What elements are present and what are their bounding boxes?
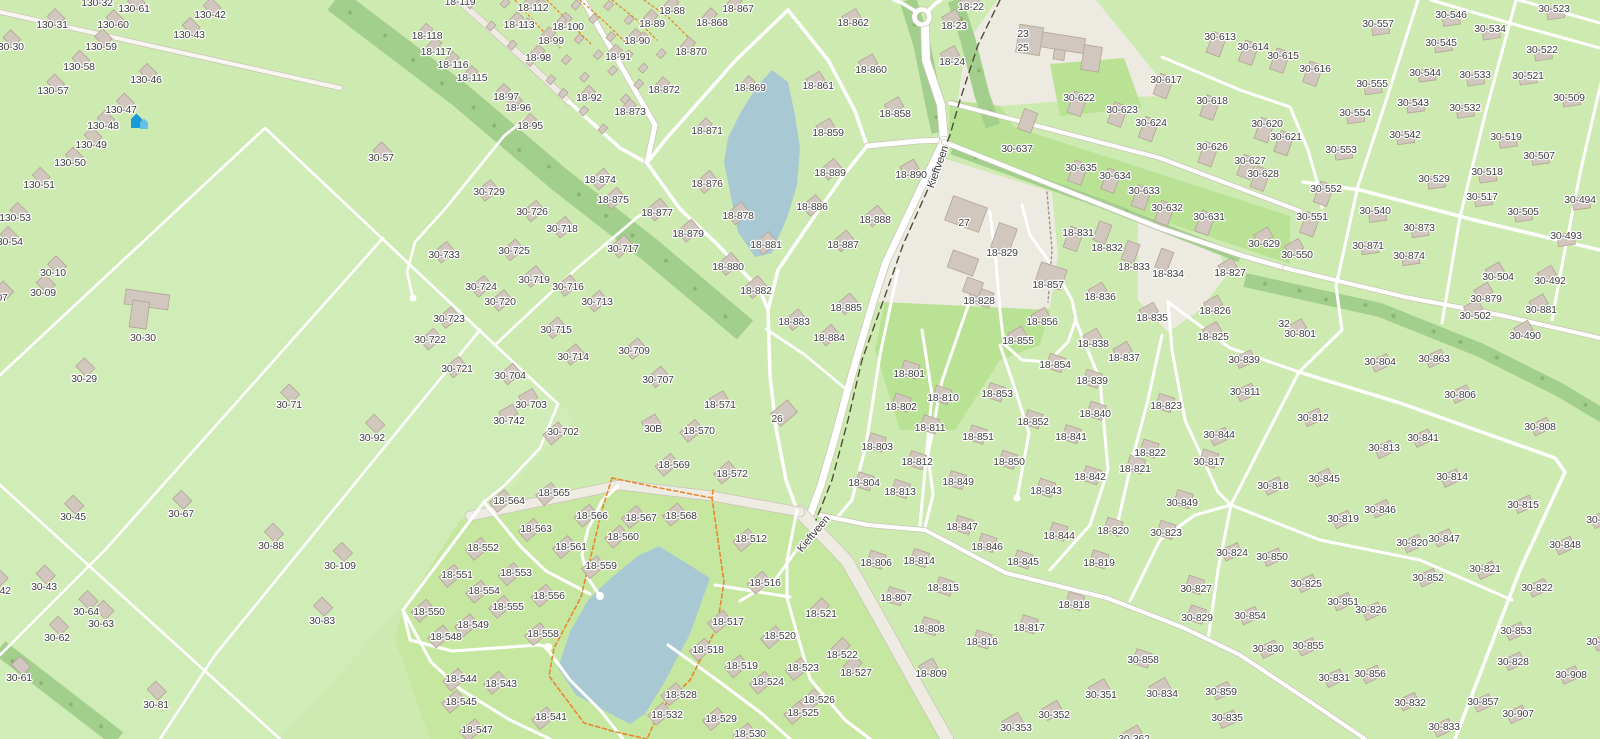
svg-text:30-81: 30-81 (143, 699, 169, 711)
svg-text:23: 23 (1017, 28, 1029, 40)
svg-text:18-812: 18-812 (901, 456, 933, 468)
svg-text:18-813: 18-813 (884, 486, 916, 498)
svg-text:18-836: 18-836 (1084, 291, 1116, 303)
svg-text:30-550: 30-550 (1281, 249, 1313, 261)
svg-text:30-819: 30-819 (1327, 513, 1359, 525)
svg-text:18-840: 18-840 (1079, 408, 1111, 420)
svg-text:30-829: 30-829 (1181, 612, 1213, 624)
svg-text:18-570: 18-570 (683, 425, 715, 437)
svg-text:30-844: 30-844 (1203, 429, 1235, 441)
svg-text:30-827: 30-827 (1180, 583, 1212, 595)
svg-text:18-846: 18-846 (971, 541, 1003, 553)
svg-text:30-30: 30-30 (130, 332, 156, 344)
svg-text:30-831: 30-831 (1318, 672, 1350, 684)
svg-text:30-834: 30-834 (1146, 688, 1178, 700)
svg-text:18-859: 18-859 (812, 127, 844, 139)
svg-text:30-873: 30-873 (1403, 222, 1435, 234)
svg-text:30-723: 30-723 (433, 313, 465, 325)
svg-text:18-842: 18-842 (1074, 471, 1106, 483)
svg-text:30-613: 30-613 (1204, 31, 1236, 43)
svg-text:18-829: 18-829 (986, 247, 1018, 259)
svg-text:30-505: 30-505 (1507, 206, 1539, 218)
svg-text:30-720: 30-720 (484, 296, 516, 308)
svg-text:18-88: 18-88 (659, 5, 685, 17)
svg-text:18-825: 18-825 (1197, 331, 1229, 343)
svg-text:130-48: 130-48 (87, 120, 119, 132)
svg-text:30-839: 30-839 (1228, 354, 1260, 366)
svg-text:18-853: 18-853 (981, 388, 1013, 400)
svg-text:18-849: 18-849 (942, 476, 974, 488)
svg-text:30-490: 30-490 (1509, 330, 1541, 342)
svg-text:30-628: 30-628 (1247, 168, 1279, 180)
svg-text:30-545: 30-545 (1425, 37, 1457, 49)
svg-text:18-100: 18-100 (552, 21, 584, 33)
svg-text:30-845: 30-845 (1308, 473, 1340, 485)
svg-text:30-629: 30-629 (1248, 238, 1280, 250)
svg-text:30-826: 30-826 (1355, 604, 1387, 616)
svg-text:18-845: 18-845 (1007, 556, 1039, 568)
svg-text:30-551: 30-551 (1296, 211, 1328, 223)
svg-text:30-42: 30-42 (0, 585, 11, 597)
svg-text:30-623: 30-623 (1106, 104, 1138, 116)
svg-text:30-10: 30-10 (40, 267, 66, 279)
svg-text:18-23: 18-23 (941, 20, 967, 32)
svg-text:18-117: 18-117 (421, 46, 452, 58)
svg-text:18-527: 18-527 (840, 667, 872, 679)
svg-text:18-555: 18-555 (492, 601, 524, 613)
svg-text:18-841: 18-841 (1055, 431, 1087, 443)
svg-text:130-30: 130-30 (0, 41, 24, 53)
svg-text:30-533: 30-533 (1459, 69, 1491, 81)
svg-text:30-722: 30-722 (414, 334, 446, 346)
svg-text:18-99: 18-99 (538, 35, 564, 47)
svg-text:30-852: 30-852 (1412, 572, 1444, 584)
svg-text:18-816: 18-816 (966, 636, 998, 648)
svg-text:18-563: 18-563 (520, 523, 552, 535)
svg-text:30-857: 30-857 (1467, 696, 1499, 708)
svg-text:30-733: 30-733 (428, 249, 460, 261)
svg-text:18-96: 18-96 (505, 102, 531, 114)
svg-text:30-847: 30-847 (1428, 533, 1460, 545)
svg-text:18-850: 18-850 (993, 456, 1025, 468)
svg-text:30-635: 30-635 (1065, 162, 1097, 174)
svg-text:30-552: 30-552 (1310, 183, 1342, 195)
svg-text:18-876: 18-876 (691, 178, 723, 190)
svg-text:30-555: 30-555 (1356, 78, 1388, 90)
svg-text:30-61: 30-61 (6, 672, 32, 684)
svg-text:18-856: 18-856 (1026, 316, 1058, 328)
svg-text:30-717: 30-717 (607, 243, 639, 255)
svg-text:30-846: 30-846 (1364, 504, 1396, 516)
svg-text:30-542: 30-542 (1389, 129, 1421, 141)
svg-text:130-60: 130-60 (97, 19, 129, 31)
svg-text:18-839: 18-839 (1076, 375, 1108, 387)
svg-text:30-725: 30-725 (498, 245, 530, 257)
svg-text:30-817: 30-817 (1193, 456, 1225, 468)
svg-text:18-833: 18-833 (1118, 261, 1150, 273)
svg-text:30-637: 30-637 (1001, 143, 1033, 155)
svg-text:30-352: 30-352 (1038, 709, 1070, 721)
svg-text:18-807: 18-807 (880, 592, 912, 604)
svg-text:30-631: 30-631 (1193, 211, 1225, 223)
svg-text:18-550: 18-550 (413, 606, 445, 618)
svg-text:30-633: 30-633 (1128, 185, 1160, 197)
svg-text:18-558: 18-558 (527, 628, 559, 640)
svg-text:30-523: 30-523 (1538, 3, 1570, 15)
svg-text:130-54: 130-54 (0, 236, 23, 248)
svg-text:18-844: 18-844 (1043, 530, 1075, 542)
svg-text:18-556: 18-556 (533, 590, 565, 602)
svg-text:30-627: 30-627 (1234, 155, 1266, 167)
svg-text:30-63: 30-63 (88, 618, 114, 630)
svg-text:18-828: 18-828 (963, 295, 995, 307)
svg-text:18-870: 18-870 (675, 46, 707, 58)
svg-text:30-504: 30-504 (1482, 271, 1514, 283)
svg-text:30-522: 30-522 (1526, 44, 1558, 56)
svg-text:18-878: 18-878 (722, 210, 754, 222)
svg-text:30-88: 30-88 (258, 540, 284, 552)
svg-text:18-512: 18-512 (735, 533, 767, 545)
svg-text:18-880: 18-880 (712, 261, 744, 273)
svg-text:18-90: 18-90 (624, 35, 650, 47)
svg-text:30-853: 30-853 (1500, 625, 1532, 637)
svg-text:30-726: 30-726 (516, 206, 548, 218)
svg-text:30-507: 30-507 (1523, 150, 1555, 162)
svg-text:30-724: 30-724 (465, 281, 497, 293)
svg-text:30-822: 30-822 (1521, 582, 1553, 594)
svg-text:30-821: 30-821 (1469, 563, 1501, 575)
svg-text:18-827: 18-827 (1214, 267, 1246, 279)
svg-text:30-907: 30-907 (1502, 708, 1534, 720)
svg-text:18-89: 18-89 (639, 18, 665, 30)
svg-text:18-838: 18-838 (1077, 338, 1109, 350)
svg-text:130-53: 130-53 (0, 212, 31, 224)
svg-text:30-620: 30-620 (1251, 118, 1283, 130)
svg-text:30-64: 30-64 (73, 606, 99, 618)
svg-text:18-858: 18-858 (879, 108, 911, 120)
svg-text:18-889: 18-889 (814, 167, 846, 179)
svg-text:18-809: 18-809 (915, 668, 947, 680)
svg-text:18-552: 18-552 (467, 542, 499, 554)
svg-text:30-534: 30-534 (1474, 23, 1506, 35)
svg-text:30-879: 30-879 (1470, 293, 1502, 305)
svg-text:18-871: 18-871 (691, 125, 723, 137)
svg-text:18-554: 18-554 (468, 585, 500, 597)
svg-text:27: 27 (958, 217, 970, 229)
svg-text:18-890: 18-890 (895, 169, 927, 181)
svg-text:30-709: 30-709 (618, 345, 650, 357)
svg-text:130-59: 130-59 (85, 41, 117, 53)
svg-text:30-912: 30-912 (1586, 636, 1600, 648)
svg-text:30-863: 30-863 (1418, 353, 1450, 365)
svg-text:130-61: 130-61 (118, 3, 150, 15)
svg-text:30-850: 30-850 (1256, 551, 1288, 563)
svg-text:18-115: 18-115 (457, 72, 488, 84)
svg-text:18-884: 18-884 (813, 332, 845, 344)
svg-text:18-881: 18-881 (750, 239, 782, 251)
svg-text:18-119: 18-119 (445, 0, 476, 8)
svg-text:30-830: 30-830 (1252, 643, 1284, 655)
svg-text:30-540: 30-540 (1359, 205, 1391, 217)
svg-text:18-559: 18-559 (585, 560, 617, 572)
svg-text:07: 07 (0, 292, 8, 304)
svg-text:30-804: 30-804 (1364, 356, 1396, 368)
svg-text:30-83: 30-83 (309, 615, 335, 627)
svg-text:18-854: 18-854 (1039, 359, 1071, 371)
svg-text:18-875: 18-875 (597, 194, 629, 206)
svg-text:18-569: 18-569 (658, 459, 690, 471)
svg-text:30-09: 30-09 (30, 287, 56, 299)
svg-text:30-881: 30-881 (1525, 304, 1557, 316)
svg-text:30-557: 30-557 (1362, 18, 1394, 30)
svg-text:18-116: 18-116 (438, 59, 469, 71)
svg-text:30-714: 30-714 (557, 351, 589, 363)
svg-text:18-521: 18-521 (805, 608, 837, 620)
svg-text:30-742: 30-742 (493, 415, 525, 427)
svg-text:18-857: 18-857 (1032, 279, 1064, 291)
svg-text:30-71: 30-71 (276, 399, 302, 411)
svg-text:18-543: 18-543 (485, 678, 517, 690)
svg-text:30-806: 30-806 (1444, 389, 1476, 401)
svg-text:130-47: 130-47 (105, 104, 137, 116)
svg-text:30-517: 30-517 (1466, 191, 1498, 203)
svg-text:18-867: 18-867 (722, 3, 754, 15)
svg-text:30-351: 30-351 (1085, 689, 1117, 701)
svg-text:18-852: 18-852 (1017, 416, 1049, 428)
svg-text:18-526: 18-526 (803, 694, 835, 706)
svg-text:18-837: 18-837 (1108, 352, 1140, 364)
svg-text:18-571: 18-571 (704, 399, 736, 411)
svg-text:30-824: 30-824 (1216, 547, 1248, 559)
svg-text:18-823: 18-823 (1150, 400, 1182, 412)
svg-text:18-851: 18-851 (962, 431, 994, 443)
svg-text:18-118: 18-118 (412, 30, 443, 42)
svg-text:30-835: 30-835 (1211, 712, 1243, 724)
svg-text:18-802: 18-802 (885, 401, 917, 413)
svg-text:30-624: 30-624 (1135, 117, 1167, 129)
svg-text:18-113: 18-113 (504, 19, 535, 31)
svg-text:18-549: 18-549 (457, 619, 489, 631)
svg-text:130-58: 130-58 (63, 61, 95, 73)
svg-text:18-861: 18-861 (802, 80, 834, 92)
svg-text:30-849: 30-849 (1166, 497, 1198, 509)
svg-text:30-553: 30-553 (1325, 144, 1357, 156)
svg-text:130-51: 130-51 (23, 179, 55, 191)
svg-text:18-98: 18-98 (525, 52, 551, 64)
svg-text:30-617: 30-617 (1150, 74, 1182, 86)
svg-text:18-95: 18-95 (517, 120, 543, 132)
svg-text:130-50: 130-50 (54, 157, 86, 169)
svg-text:30-833: 30-833 (1428, 721, 1460, 733)
svg-text:30-856: 30-856 (1354, 668, 1386, 680)
svg-text:30-808: 30-808 (1524, 421, 1556, 433)
svg-text:18-883: 18-883 (778, 316, 810, 328)
svg-text:18-803: 18-803 (861, 441, 893, 453)
svg-text:30-703: 30-703 (515, 399, 547, 411)
svg-text:130-43: 130-43 (173, 29, 205, 41)
svg-text:18-817: 18-817 (1013, 622, 1045, 634)
svg-text:30-614: 30-614 (1237, 41, 1269, 53)
svg-text:130-46: 130-46 (130, 74, 162, 86)
svg-text:18-887: 18-887 (827, 239, 859, 251)
svg-text:30-855: 30-855 (1292, 640, 1324, 652)
svg-text:18-811: 18-811 (915, 422, 946, 434)
svg-text:18-567: 18-567 (625, 512, 657, 524)
svg-text:18-835: 18-835 (1136, 312, 1168, 324)
svg-text:18-831: 18-831 (1062, 227, 1094, 239)
svg-text:30-828: 30-828 (1497, 656, 1529, 668)
svg-text:30-841: 30-841 (1407, 432, 1439, 444)
svg-text:30-532: 30-532 (1449, 102, 1481, 114)
svg-text:30-43: 30-43 (31, 581, 57, 593)
svg-text:30-871: 30-871 (1352, 240, 1384, 252)
svg-text:18-529: 18-529 (705, 713, 737, 725)
svg-text:18-818: 18-818 (1058, 599, 1090, 611)
svg-text:18-22: 18-22 (958, 1, 984, 13)
svg-text:30-518: 30-518 (1471, 166, 1503, 178)
svg-text:18-820: 18-820 (1097, 525, 1129, 537)
svg-text:18-541: 18-541 (535, 711, 567, 723)
svg-text:130-31: 130-31 (36, 19, 68, 31)
svg-text:30-544: 30-544 (1409, 67, 1441, 79)
svg-text:18-91: 18-91 (605, 51, 631, 63)
svg-text:18-561: 18-561 (555, 541, 587, 553)
svg-text:18-872: 18-872 (648, 84, 680, 96)
svg-text:18-877: 18-877 (641, 207, 673, 219)
svg-text:18-886: 18-886 (796, 201, 828, 213)
svg-text:18-551: 18-551 (441, 569, 473, 581)
svg-text:25: 25 (1017, 42, 1029, 54)
svg-text:18-847: 18-847 (946, 521, 978, 533)
svg-text:30-632: 30-632 (1151, 202, 1183, 214)
svg-text:18-525: 18-525 (787, 707, 819, 719)
svg-text:18-801: 18-801 (893, 368, 925, 380)
svg-text:18-855: 18-855 (1002, 335, 1034, 347)
svg-text:30-716: 30-716 (552, 281, 584, 293)
svg-text:18-92: 18-92 (576, 92, 602, 104)
svg-text:30-546: 30-546 (1435, 9, 1467, 21)
svg-text:30-67: 30-67 (168, 508, 194, 520)
svg-text:18-524: 18-524 (752, 676, 784, 688)
svg-text:30-502: 30-502 (1459, 310, 1491, 322)
svg-text:18-862: 18-862 (837, 17, 869, 29)
svg-text:30-45: 30-45 (60, 511, 86, 523)
svg-text:18-806: 18-806 (860, 557, 892, 569)
svg-text:18-532: 18-532 (651, 709, 683, 721)
svg-text:30-713: 30-713 (581, 296, 613, 308)
svg-text:30-818: 30-818 (1257, 480, 1289, 492)
svg-text:30-908: 30-908 (1555, 669, 1587, 681)
svg-text:18-832: 18-832 (1091, 242, 1123, 254)
svg-text:30-29: 30-29 (71, 373, 97, 385)
svg-text:30-729: 30-729 (473, 186, 505, 198)
svg-text:18-112: 18-112 (518, 2, 549, 14)
svg-text:18-572: 18-572 (716, 468, 748, 480)
svg-text:18-568: 18-568 (665, 510, 697, 522)
svg-text:18-888: 18-888 (859, 214, 891, 226)
svg-text:18-564: 18-564 (493, 495, 525, 507)
svg-text:30-353: 30-353 (1000, 722, 1032, 734)
svg-text:30-92: 30-92 (359, 432, 385, 444)
svg-text:30B: 30B (644, 423, 662, 435)
svg-text:30-810: 30-810 (1586, 514, 1600, 526)
svg-text:18-565: 18-565 (538, 487, 570, 499)
svg-text:18-834: 18-834 (1152, 268, 1184, 280)
svg-text:130-42: 130-42 (194, 9, 226, 21)
svg-text:18-860: 18-860 (855, 64, 887, 76)
svg-text:30-62: 30-62 (44, 632, 70, 644)
svg-text:30-848: 30-848 (1549, 539, 1581, 551)
svg-text:30-820: 30-820 (1396, 537, 1428, 549)
svg-text:30-832: 30-832 (1394, 697, 1426, 709)
svg-text:30-554: 30-554 (1339, 107, 1371, 119)
svg-text:18-819: 18-819 (1083, 557, 1115, 569)
svg-text:30-814: 30-814 (1436, 471, 1468, 483)
svg-text:30-812: 30-812 (1297, 412, 1329, 424)
svg-text:18-544: 18-544 (445, 673, 477, 685)
svg-text:30-618: 30-618 (1196, 95, 1228, 107)
svg-text:30-634: 30-634 (1099, 170, 1131, 182)
svg-text:18-24: 18-24 (939, 56, 965, 68)
svg-text:30-718: 30-718 (546, 223, 578, 235)
svg-text:30-492: 30-492 (1534, 275, 1566, 287)
svg-text:30-874: 30-874 (1393, 250, 1425, 262)
svg-text:18-528: 18-528 (665, 689, 697, 701)
svg-text:30-707: 30-707 (642, 374, 674, 386)
svg-text:130-32: 130-32 (81, 0, 113, 9)
svg-text:18-560: 18-560 (607, 531, 639, 543)
svg-text:30-858: 30-858 (1127, 654, 1159, 666)
svg-text:30-543: 30-543 (1397, 97, 1429, 109)
svg-text:30-621: 30-621 (1270, 131, 1302, 143)
svg-text:18-822: 18-822 (1134, 447, 1166, 459)
svg-text:30-521: 30-521 (1512, 70, 1544, 82)
svg-text:30-362: 30-362 (1118, 733, 1150, 739)
svg-text:30-622: 30-622 (1063, 92, 1095, 104)
svg-text:18-547: 18-547 (461, 724, 493, 736)
svg-text:18-804: 18-804 (848, 477, 880, 489)
svg-text:18-826: 18-826 (1199, 305, 1231, 317)
svg-text:30-704: 30-704 (494, 370, 526, 382)
svg-text:30-715: 30-715 (540, 324, 572, 336)
svg-text:30-815: 30-815 (1507, 499, 1539, 511)
svg-text:18-566: 18-566 (576, 510, 608, 522)
svg-text:18-868: 18-868 (696, 17, 728, 29)
svg-text:30-509: 30-509 (1553, 92, 1585, 104)
svg-text:18-843: 18-843 (1030, 485, 1062, 497)
svg-text:18-553: 18-553 (500, 567, 532, 579)
svg-text:18-517: 18-517 (712, 616, 744, 628)
svg-text:30-494: 30-494 (1564, 194, 1596, 206)
svg-text:18-879: 18-879 (672, 228, 704, 240)
svg-text:18-885: 18-885 (830, 302, 862, 314)
svg-text:18-815: 18-815 (927, 582, 959, 594)
svg-text:18-814: 18-814 (903, 555, 935, 567)
svg-text:30-493: 30-493 (1550, 230, 1582, 242)
svg-text:18-808: 18-808 (913, 623, 945, 635)
svg-text:30-615: 30-615 (1267, 50, 1299, 62)
svg-text:30-529: 30-529 (1418, 173, 1450, 185)
svg-text:18-548: 18-548 (430, 631, 462, 643)
svg-text:30-109: 30-109 (324, 560, 356, 572)
svg-text:30-859: 30-859 (1205, 686, 1237, 698)
svg-text:18-810: 18-810 (927, 392, 959, 404)
svg-text:130-49: 130-49 (75, 139, 107, 151)
svg-text:130-57: 130-57 (37, 85, 69, 97)
svg-text:18-545: 18-545 (445, 696, 477, 708)
svg-text:30-811: 30-811 (1230, 386, 1261, 398)
svg-text:30-823: 30-823 (1150, 527, 1182, 539)
